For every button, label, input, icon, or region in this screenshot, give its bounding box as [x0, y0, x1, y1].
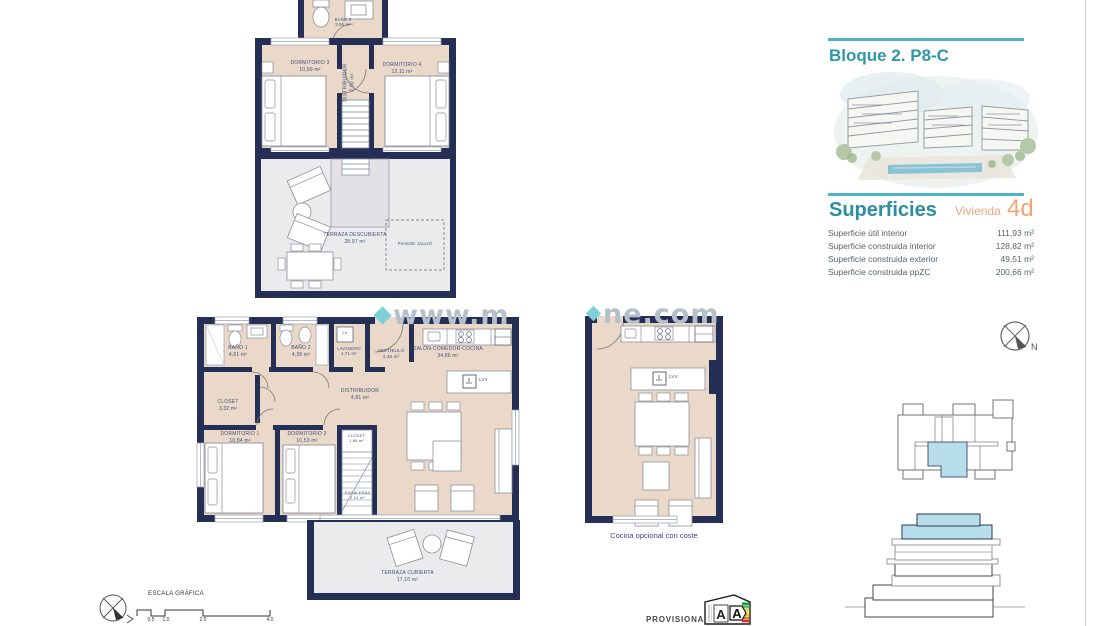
scale-tick: 1.0 — [157, 617, 175, 623]
building-elevation — [845, 500, 1025, 626]
room-label-distribuidor: DISTRIBUIDOR 4,81 m² — [315, 388, 405, 401]
ground-floor-plan: BAÑO 1 4,61 m² BAÑO 2 4,35 m² LAVADERO 1… — [195, 315, 525, 605]
kitchen-counter-icon — [423, 329, 511, 345]
dining-table-icon — [635, 393, 689, 455]
highlighted-floor — [917, 514, 980, 526]
room-area: 3,32 m² — [202, 406, 254, 413]
room-label-bano3: BAÑO 3 3,95 m² — [315, 17, 371, 28]
room-area: 10,53 m² — [278, 438, 336, 445]
caption-text: Cocina opcional con coste — [610, 531, 698, 540]
bed-icon — [205, 443, 263, 513]
room-area: 10,99 m² — [275, 67, 345, 74]
bed-icon — [283, 445, 335, 513]
divider-rule — [828, 193, 1024, 196]
island-appliance-label: LVV — [669, 374, 687, 380]
compass-icon — [100, 595, 133, 623]
label-text: LV — [338, 330, 352, 335]
room-label-terraza-cubierta: TERRAZA CUBIERTA 17,10 m² — [345, 570, 470, 583]
room-area: 3,95 m² — [315, 22, 371, 27]
room-area: 2,10 m² — [340, 495, 375, 500]
covered-terrace — [307, 520, 520, 600]
optional-kitchen-caption: Cocina opcional con coste — [583, 531, 725, 540]
watermark-text: www.m — [393, 300, 510, 331]
toilet-icon — [280, 325, 293, 346]
room-area: 34,86 m² — [381, 353, 515, 360]
row-label: Superficie útil interior — [828, 228, 907, 238]
compass-icon — [993, 316, 1045, 360]
code-text: 4d — [1007, 195, 1034, 222]
coffee-table-icon — [643, 462, 669, 490]
title-text: ESCALA GRÁFICA — [148, 591, 204, 597]
provisional-label: PROVISIONAL — [646, 615, 706, 624]
building-rendering — [832, 66, 1040, 190]
row-label: Superficie construida interior — [828, 241, 936, 251]
room-area: 10,84 m² — [204, 438, 276, 445]
page-border — [1085, 0, 1086, 626]
watermark-left-fragment: www.m — [376, 300, 510, 331]
room-label-bano1: BAÑO 1 4,61 m² — [203, 345, 273, 358]
jacuzzi-note: Preinstln Jacuzzi — [387, 241, 443, 246]
scale-title: ESCALA GRÁFICA — [146, 591, 206, 597]
armchair-icon — [415, 485, 438, 511]
row-value: 128,82 m² — [996, 241, 1034, 251]
upper-floor-plan: BAÑO 3 3,95 m² DORMITORIO 3 10,99 m² DOR… — [253, 0, 458, 300]
site-key-plan — [885, 392, 1020, 487]
superficies-row: Superficie útil interior 111,93 m² — [828, 226, 1034, 239]
divider-rule — [828, 38, 1024, 41]
room-label-escaleras: ESCALERAS 2,10 m² — [340, 490, 375, 500]
scale-bar-steps — [137, 610, 270, 616]
superficies-row: Superficie construida ppZC 200,66 m² — [828, 265, 1034, 278]
room-area: 12,11 m² — [367, 69, 437, 76]
superficies-row: Superficie construida exterior 49,51 m² — [828, 252, 1034, 265]
energy-label-icon: A A — [702, 593, 754, 626]
stairs-icon — [342, 159, 369, 175]
optional-kitchen-plan: LVV Cocina opcional con coste — [583, 312, 725, 547]
note-text: Preinstln Jacuzzi — [387, 241, 443, 246]
highlighted-unit — [928, 442, 967, 477]
round-table-icon — [423, 535, 441, 553]
room-label-dormitorio1: DORMITORIO 1 10,84 m² — [204, 431, 276, 444]
row-label: Superficie construida exterior — [828, 254, 938, 264]
label-text: N — [1031, 342, 1038, 352]
room-label-salon: SALÓN-COMEDOR-COCINA 34,86 m² — [381, 346, 515, 359]
heading-text: Superficies — [829, 199, 937, 221]
watermark-logo-icon — [586, 306, 602, 322]
scale-graphic: ESCALA GRÁFICA 0.5 1.0 2.0 4.0 — [88, 590, 288, 626]
kitchen-island-icon — [631, 368, 705, 390]
row-value: 111,93 m² — [997, 228, 1034, 238]
compass-north: N — [993, 316, 1053, 362]
room-area: 4,81 m² — [315, 395, 405, 402]
room-area: 4,61 m² — [203, 352, 273, 359]
room-label-dormitorio3: DORMITORIO 3 10,99 m² — [275, 60, 345, 73]
room-area: 2,90 m² — [349, 53, 356, 113]
room-area: 1,86 m² — [340, 438, 373, 443]
row-value: 200,66 m² — [996, 267, 1034, 277]
upper-terrace — [255, 152, 456, 298]
scale-tick: 2.0 — [194, 617, 212, 623]
room-area: 4,35 m² — [266, 352, 336, 359]
room-label-closet: CLOSET 3,32 m² — [202, 399, 254, 412]
label-text: Vivienda — [955, 204, 1001, 218]
bedroom-block — [255, 38, 456, 154]
energy-letter: A — [716, 607, 726, 622]
upper-floor-plan-drawing — [253, 0, 458, 300]
coffee-table-icon — [433, 441, 461, 471]
room-label-closet2: CLOSET 1,86 m² — [340, 433, 373, 443]
row-value: 49,51 m² — [1000, 254, 1034, 264]
fridge-icon — [495, 329, 511, 345]
superficies-heading: Superficies — [829, 199, 937, 222]
vivienda-label: Vivienda — [955, 204, 1001, 218]
title-text: Bloque 2. P8-C — [829, 46, 949, 65]
superficies-row: Superficie construida interior 128,82 m² — [828, 239, 1034, 252]
watermark-text: ne.com — [603, 299, 719, 330]
room-label-dormitorio2: DORMITORIO 2 10,53 m² — [278, 431, 336, 444]
island-appliance-label: LVV — [479, 377, 497, 383]
row-label: Superficie construida ppZC — [828, 267, 931, 277]
north-label: N — [1031, 342, 1038, 352]
scale-tick: 4.0 — [261, 617, 279, 623]
label-text: LVV — [479, 377, 497, 383]
room-label-dormitorio4: DORMITORIO 4 12,11 m² — [367, 62, 437, 75]
room-area: 17,10 m² — [345, 577, 470, 584]
room-label-distribuidor-upper: DISTRIBUIDOR 2,90 m² — [343, 53, 356, 113]
label-text: LVV — [669, 374, 687, 380]
watermark-right-fragment: ne.com — [588, 299, 719, 330]
highlighted-floor — [902, 525, 992, 539]
superficies-table: Superficie útil interior 111,93 m² Super… — [828, 226, 1034, 278]
armchair-icon — [451, 485, 474, 511]
optional-kitchen-drawing — [583, 312, 725, 547]
window-icon — [613, 516, 677, 523]
sink-icon — [247, 325, 267, 338]
sofa-icon — [495, 429, 512, 493]
block-title: Bloque 2. P8-C — [829, 46, 949, 66]
washer-box-label: LV — [338, 330, 352, 335]
energy-letter: A — [732, 606, 742, 621]
room-label-bano2: BAÑO 2 4,35 m² — [266, 345, 336, 358]
sofa-icon — [695, 438, 711, 498]
watermark-logo-icon — [373, 306, 391, 324]
label-text: PROVISIONAL — [646, 615, 710, 624]
vivienda-code: 4d — [1007, 195, 1034, 223]
toilet-icon — [228, 325, 242, 347]
bidet-icon — [299, 327, 311, 343]
floor-plan-sheet: BAÑO 3 3,95 m² DORMITORIO 3 10,99 m² DOR… — [0, 0, 1110, 626]
